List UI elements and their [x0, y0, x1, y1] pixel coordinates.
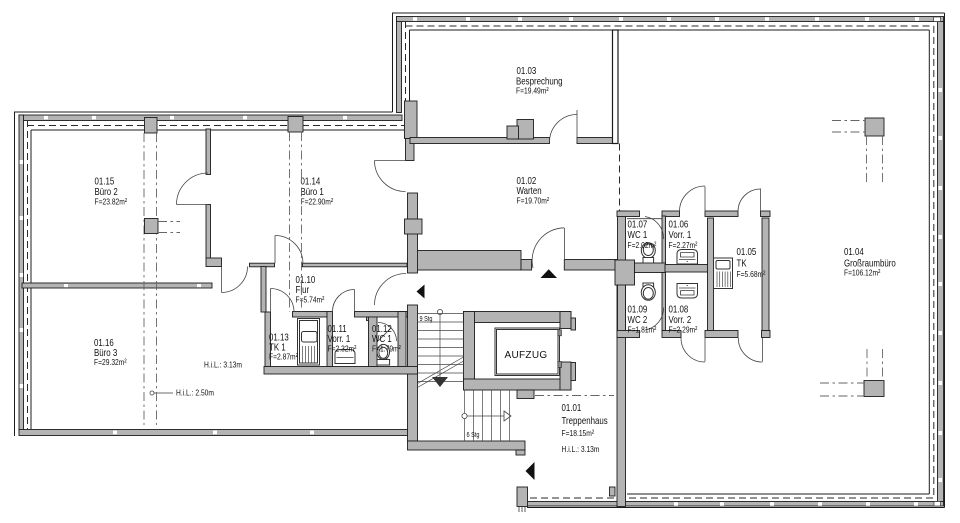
svg-text:01.05: 01.05: [737, 246, 757, 257]
svg-text:F=18.15m²: F=18.15m²: [562, 428, 595, 438]
svg-text:F=22.90m²: F=22.90m²: [301, 197, 334, 207]
svg-text:F=2.27m²: F=2.27m²: [669, 240, 698, 250]
svg-text:F=19.70m²: F=19.70m²: [517, 196, 550, 206]
svg-text:F=1.79m²: F=1.79m²: [372, 344, 401, 354]
svg-text:01.07: 01.07: [628, 219, 648, 230]
svg-text:H.i.L.: 2.50m: H.i.L.: 2.50m: [176, 388, 214, 398]
svg-text:Warten: Warten: [517, 185, 542, 196]
svg-text:Flur: Flur: [296, 284, 310, 295]
svg-text:9 Stg: 9 Stg: [420, 315, 433, 323]
svg-text:Büro 1: Büro 1: [301, 186, 324, 197]
svg-text:01.01: 01.01: [562, 402, 582, 413]
svg-text:TK: TK: [737, 258, 747, 269]
svg-text:01.15: 01.15: [95, 176, 115, 187]
svg-text:AUFZUG: AUFZUG: [505, 350, 548, 361]
svg-text:F=5.68m²: F=5.68m²: [737, 269, 766, 279]
svg-text:F=106.12m²: F=106.12m²: [844, 268, 881, 278]
svg-text:H.i.L.: 3.13m: H.i.L.: 3.13m: [204, 360, 242, 370]
svg-text:01.03: 01.03: [517, 65, 537, 76]
svg-text:WC 1: WC 1: [372, 333, 392, 344]
svg-text:H.i.L.: 3.13m: H.i.L.: 3.13m: [562, 444, 600, 454]
svg-text:6 Stg: 6 Stg: [467, 431, 480, 439]
svg-text:Vorr. 1: Vorr. 1: [328, 333, 351, 344]
svg-text:01.06: 01.06: [669, 219, 689, 230]
svg-text:F=2.02m²: F=2.02m²: [628, 240, 657, 250]
svg-text:Büro 2: Büro 2: [95, 186, 118, 197]
svg-text:F=1.81m²: F=1.81m²: [628, 325, 657, 335]
svg-text:F=29.32m²: F=29.32m²: [94, 357, 127, 367]
svg-text:WC 1: WC 1: [628, 229, 648, 240]
svg-text:WC 2: WC 2: [628, 314, 648, 325]
svg-text:01.04: 01.04: [844, 246, 864, 257]
svg-text:Treppenhaus: Treppenhaus: [562, 415, 609, 426]
svg-text:F=23.82m²: F=23.82m²: [95, 197, 128, 207]
svg-text:Vorr. 2: Vorr. 2: [669, 314, 692, 325]
svg-text:Vorr. 1: Vorr. 1: [669, 229, 692, 240]
svg-text:01.14: 01.14: [301, 176, 321, 187]
svg-text:F=2.87m²: F=2.87m²: [269, 352, 298, 362]
svg-text:01.09: 01.09: [628, 304, 648, 315]
svg-text:F=5.74m²: F=5.74m²: [296, 295, 325, 305]
svg-text:01.08: 01.08: [669, 304, 689, 315]
svg-text:F=2.29m²: F=2.29m²: [669, 325, 698, 335]
svg-text:F=2.32m²: F=2.32m²: [328, 344, 357, 354]
svg-text:F=19.49m²: F=19.49m²: [516, 86, 549, 96]
